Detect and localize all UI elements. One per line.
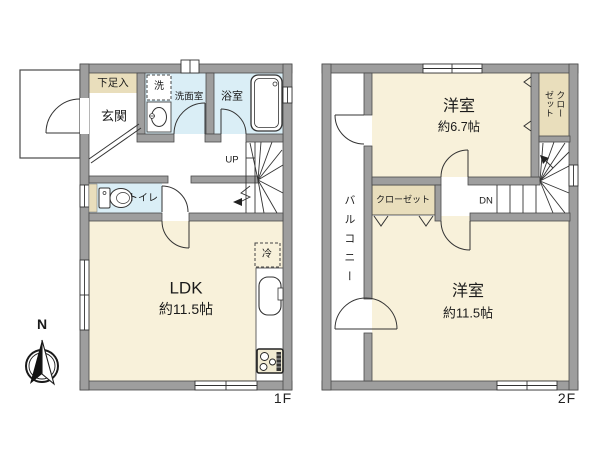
wall	[189, 213, 283, 221]
label-balcony: バルコニー	[341, 195, 355, 290]
f1-porch	[20, 70, 80, 158]
label-shoe-cabinet: 下足入	[97, 78, 129, 89]
wall	[206, 73, 214, 134]
label-washroom: 洗面室	[175, 92, 204, 102]
label-floor1: 1F	[274, 391, 292, 405]
toilet-tank-icon	[99, 188, 110, 208]
floor-plan-canvas: 下足入 玄関 洗 洗面室 浴室 UP トイレ 冷 LDK 約11.5帖 1F バ…	[0, 0, 600, 450]
wall	[246, 134, 283, 142]
wall	[539, 136, 570, 142]
wall	[322, 64, 331, 390]
kitchen-sink-tab	[278, 288, 283, 300]
wall	[531, 73, 539, 177]
wall	[569, 64, 578, 390]
wall	[468, 177, 540, 185]
label-washer: 洗	[154, 82, 164, 92]
label-room-a-size: 約6.7帖	[438, 121, 480, 134]
label-entrance: 玄関	[101, 110, 127, 123]
label-fridge: 冷	[262, 250, 272, 260]
floor1-plan	[20, 60, 292, 390]
f1-front-door-opening	[80, 98, 89, 134]
label-closet: クローゼット	[376, 196, 430, 205]
wall	[80, 381, 292, 390]
label-room-b-name: 洋室	[452, 284, 484, 300]
stove-burner	[260, 364, 267, 371]
label-ldk-size: 約11.5帖	[159, 302, 213, 316]
wall-balcony	[364, 146, 372, 299]
wall	[89, 213, 162, 221]
bathtub-icon	[251, 75, 282, 131]
wall	[89, 176, 168, 183]
label-compass-north: N	[37, 317, 47, 331]
label-room-a-name: 洋室	[443, 99, 475, 115]
stove-burner	[261, 353, 269, 361]
label-stairs-down: DN	[479, 196, 493, 206]
toilet-counter	[89, 184, 97, 212]
compass-rose	[26, 340, 58, 384]
wall-stair-stub	[191, 176, 258, 183]
label-toilet: トイレ	[128, 194, 158, 204]
wall-balcony	[364, 333, 372, 381]
compass-needle-light	[42, 340, 54, 384]
label-closet-vertical: クロー ゼット	[543, 91, 566, 118]
label-room-b-size: 約11.5帖	[443, 307, 493, 320]
wall	[205, 134, 221, 142]
wall-balcony	[364, 73, 372, 115]
wall	[283, 64, 292, 390]
label-ldk-name: LDK	[169, 280, 202, 297]
wall	[470, 213, 570, 221]
label-bathroom: 浴室	[221, 92, 243, 103]
label-stairs-up: UP	[225, 155, 238, 165]
wall	[372, 177, 441, 185]
label-floor2: 2F	[558, 391, 576, 405]
wall	[137, 134, 174, 142]
wall	[435, 185, 441, 221]
floor-plan-drawing	[0, 0, 600, 450]
stove-burner	[270, 359, 276, 365]
